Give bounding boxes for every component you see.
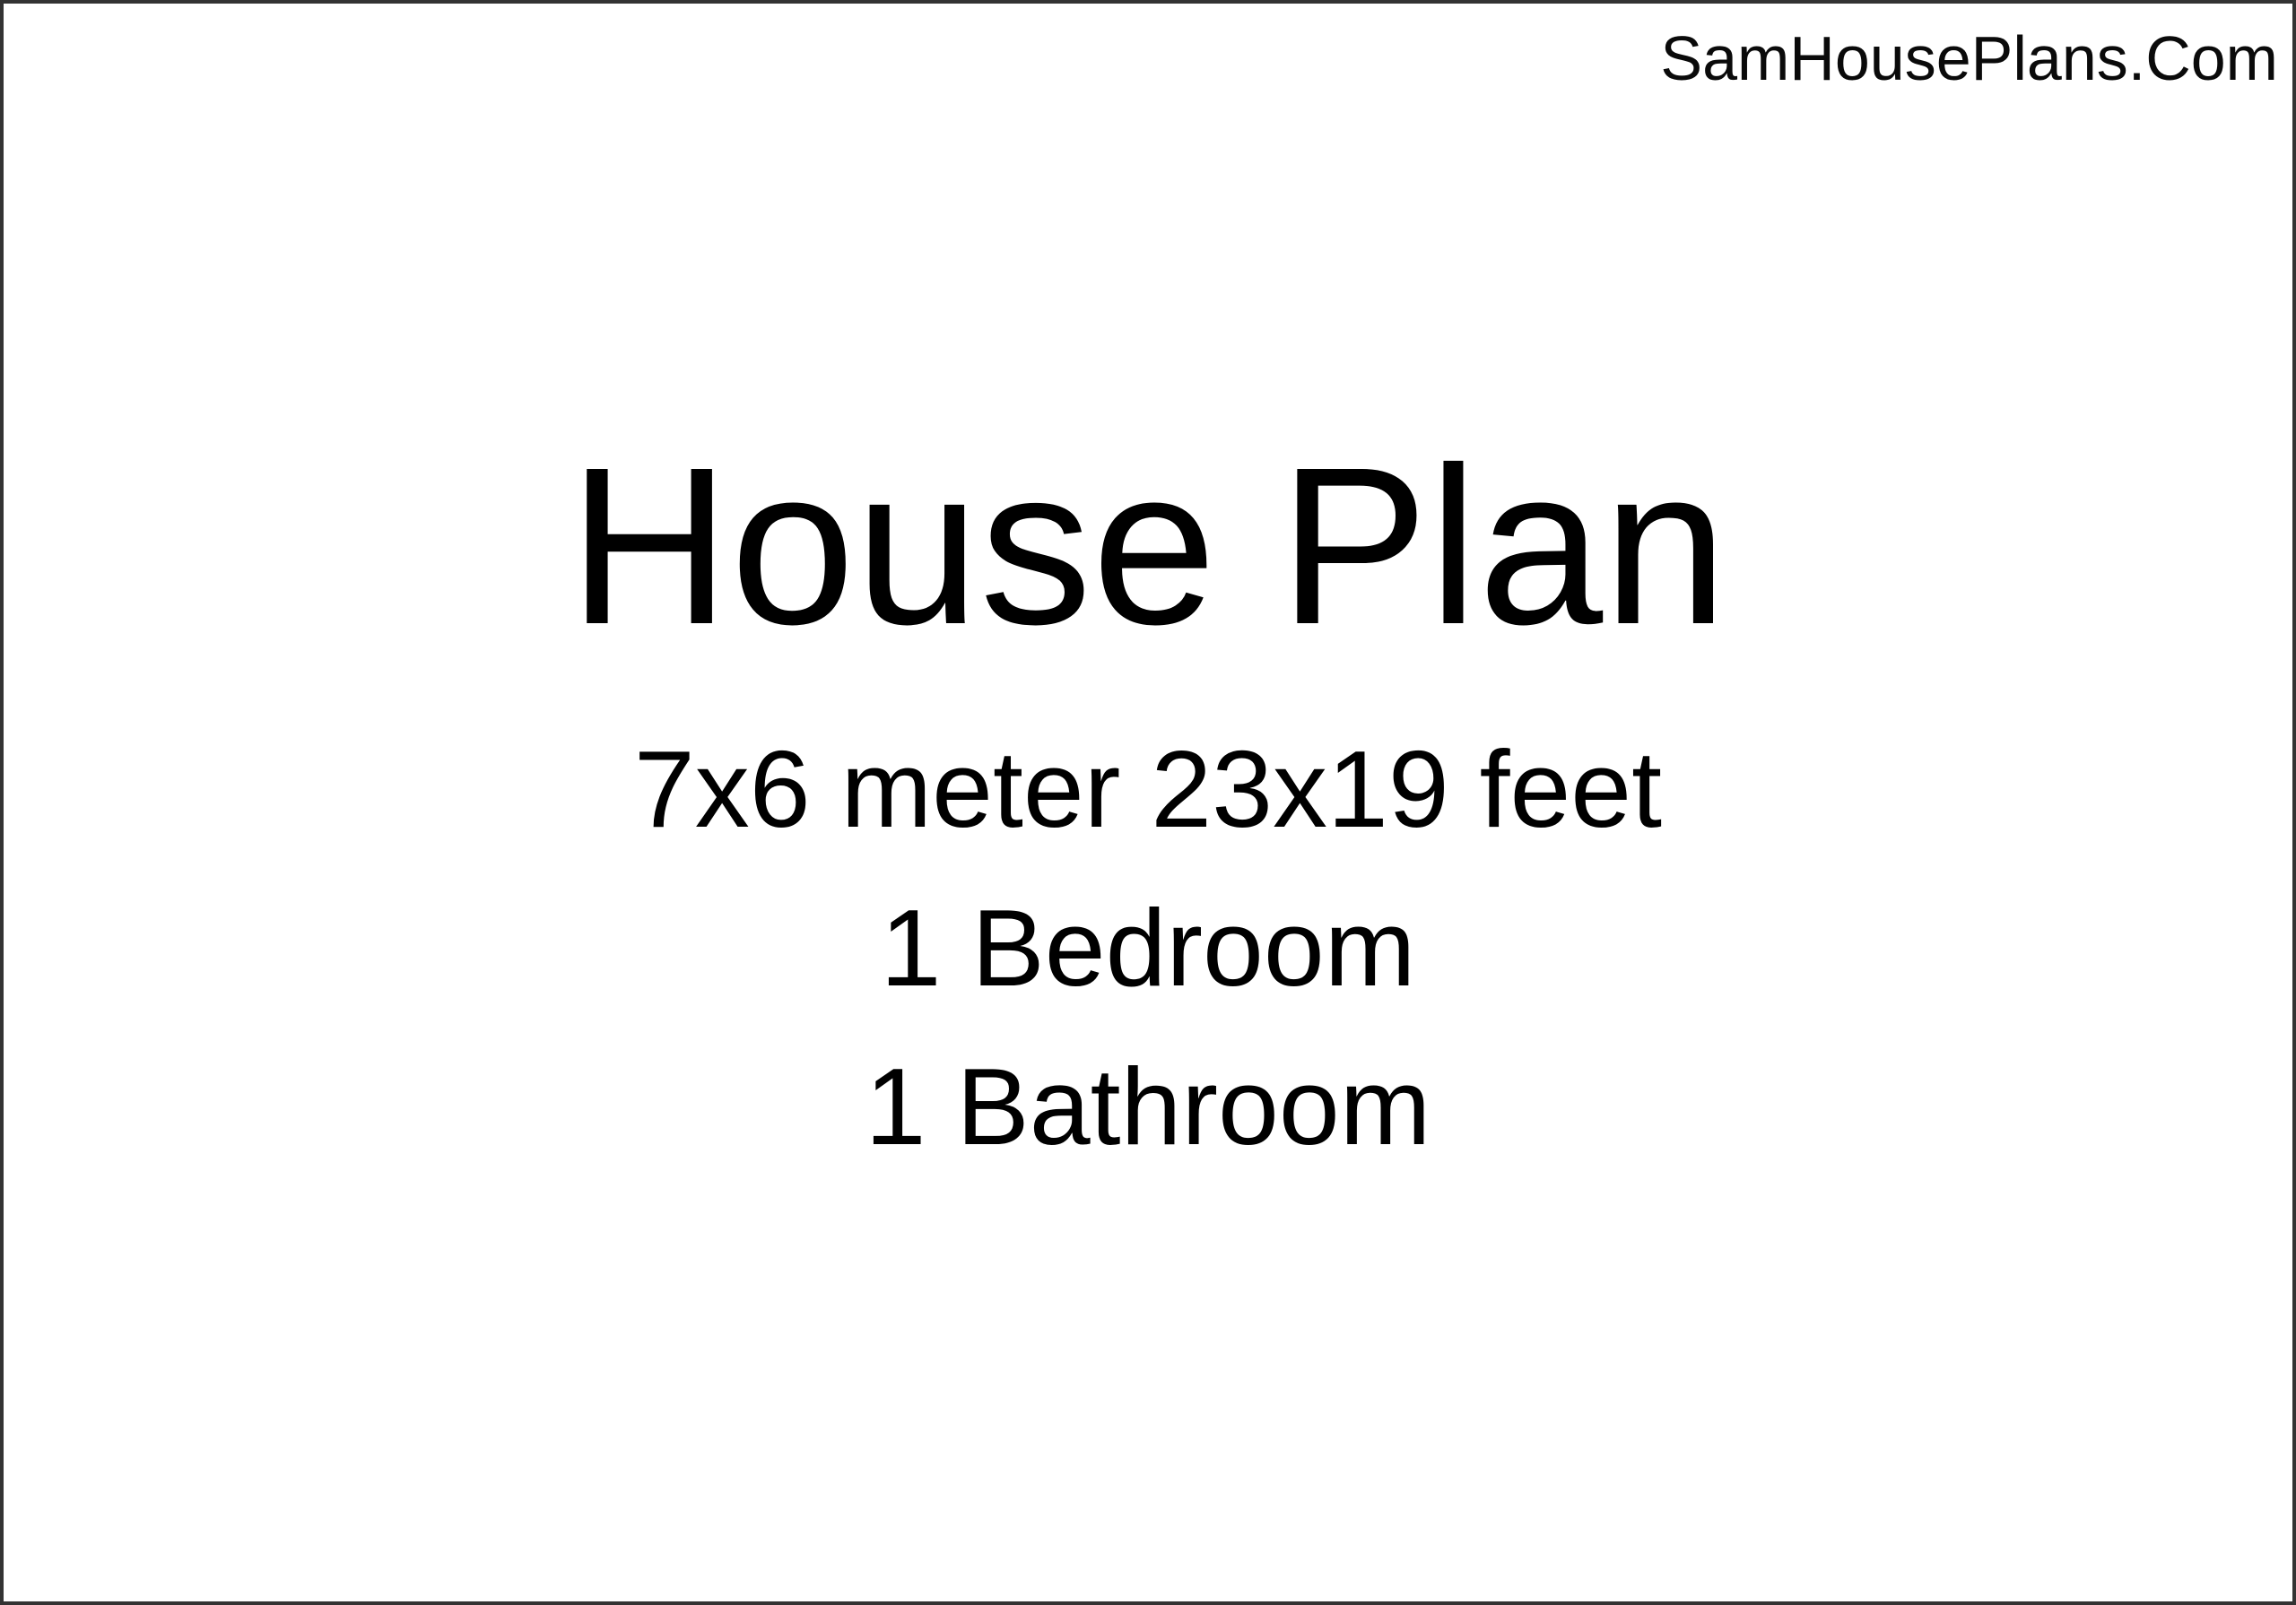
subtitle-dimensions: 7x6 meter 23x19 feet (4, 734, 2292, 844)
page-title: House Plan (4, 434, 2292, 658)
house-plan-title-card: SamHousePlans.Com House Plan 7x6 meter 2… (0, 0, 2296, 1605)
title-card-content: House Plan 7x6 meter 23x19 feet 1 Bedroo… (4, 4, 2292, 1161)
subtitle-bathroom-count: 1 Bathroom (4, 1052, 2292, 1161)
subtitle-bedroom-count: 1 Bedroom (4, 893, 2292, 1002)
